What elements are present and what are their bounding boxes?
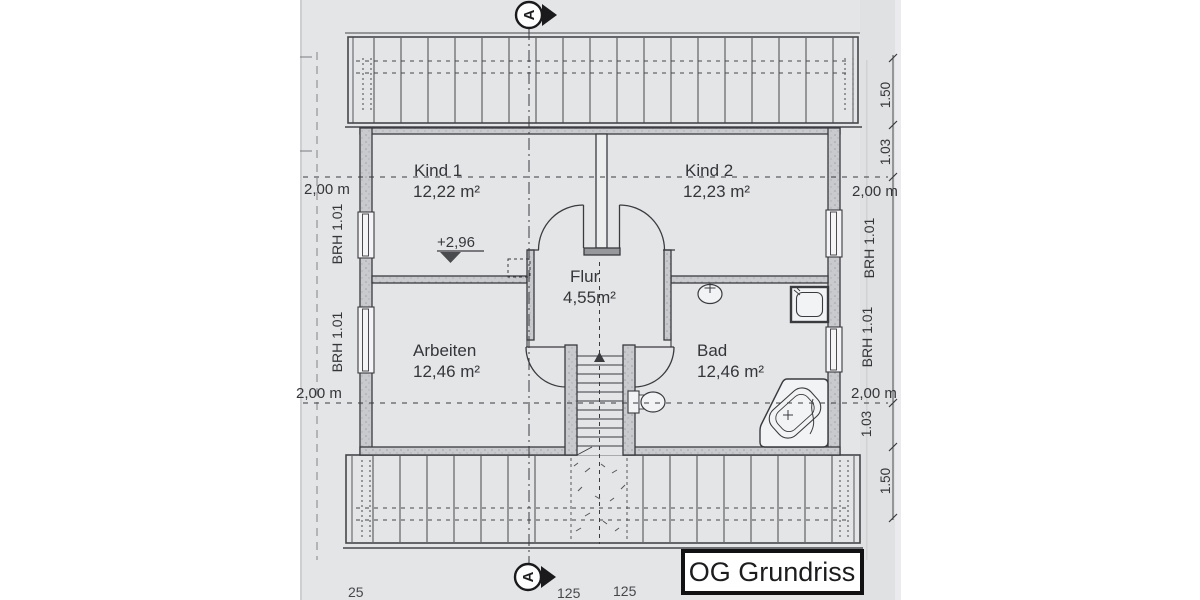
right-dim-103-bottom: 1.03: [859, 411, 874, 437]
flur-lintel-bar: [584, 248, 620, 255]
wall-kind1-arbeiten: [372, 276, 527, 283]
section-letter-bottom: A: [520, 571, 537, 582]
elevation-value: +2,96: [437, 234, 475, 251]
scanned-floorplan-page: A A +2,96 Kind 1 12,22 m² Kind 2 12,23 m…: [0, 0, 1200, 600]
window-left-upper: [358, 212, 374, 258]
room-kind1-name: Kind 1: [414, 161, 462, 180]
right-level-top-label: 2,00 m: [852, 183, 898, 200]
window-right-upper: [826, 210, 842, 257]
room-flur-name: Flur: [570, 267, 600, 286]
room-arbeiten-area: 12,46 m²: [413, 362, 480, 381]
left-brh-upper-label: BRH 1.01: [329, 203, 345, 264]
title-block: OG Grundriss: [683, 551, 862, 593]
wall-top: [360, 128, 840, 134]
right-dim-150-top: 1.50: [878, 82, 893, 108]
right-brh-upper-label: BRH 1.01: [861, 217, 877, 278]
wall-kind1-kind2: [596, 134, 607, 248]
room-kind2-area: 12,23 m²: [683, 182, 750, 201]
room-bad-name: Bad: [697, 341, 727, 360]
plan-title: OG Grundriss: [689, 557, 856, 587]
wall-kind2-bad: [671, 276, 828, 283]
window-left-lower: [358, 307, 374, 373]
stair-wall-left: [565, 345, 577, 455]
flur-wall-east: [664, 250, 671, 340]
toilet-icon: [628, 391, 665, 413]
left-brh-lower-label: BRH 1.01: [329, 311, 345, 372]
bottom-num-125a: 125: [557, 585, 581, 600]
right-dim-150-bottom: 1.50: [878, 468, 893, 494]
section-letter-top: A: [521, 9, 538, 20]
bottom-num-125b: 125: [613, 583, 637, 599]
left-level-top-label: 2,00 m: [304, 181, 350, 198]
left-level-bottom-label: 2,00 m: [296, 385, 342, 402]
right-brh-lower-label: BRH 1.01: [859, 306, 875, 367]
shower-icon: [791, 287, 828, 322]
room-kind1-area: 12,22 m²: [413, 182, 480, 201]
right-dim-103-top: 1.03: [878, 139, 893, 165]
right-level-bottom-label: 2,00 m: [851, 385, 897, 402]
room-flur-area: 4,55m²: [563, 288, 616, 307]
room-arbeiten-name: Arbeiten: [413, 341, 476, 360]
bottom-num-25: 25: [348, 584, 364, 600]
floorplan-svg: A A +2,96 Kind 1 12,22 m² Kind 2 12,23 m…: [0, 0, 1200, 600]
room-bad-area: 12,46 m²: [697, 362, 764, 381]
room-kind2-name: Kind 2: [685, 161, 733, 180]
window-right-lower: [826, 327, 842, 372]
